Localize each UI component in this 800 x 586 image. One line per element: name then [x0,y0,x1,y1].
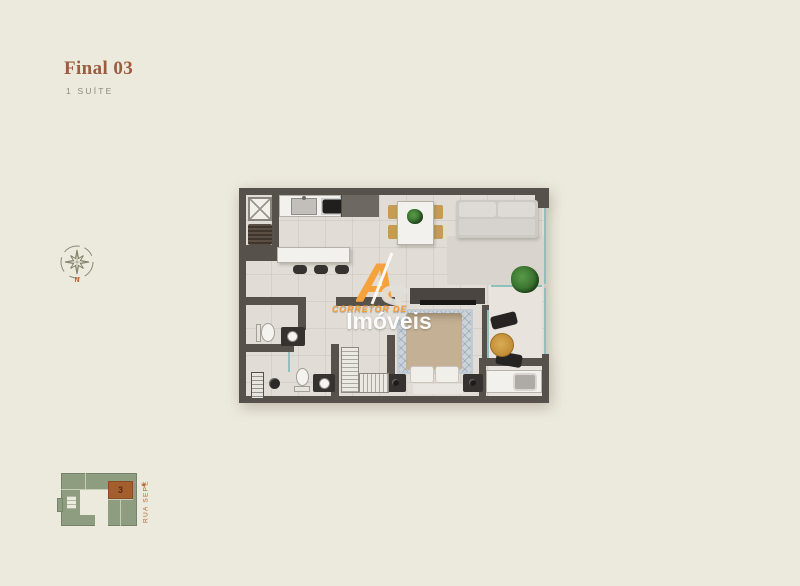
wall [387,335,395,377]
highlighted-unit: 3 [108,481,133,499]
sofa-seat [459,219,535,235]
window-glass [544,208,546,284]
tv-screen [420,300,476,305]
wall [239,188,542,195]
dining-chair [433,225,443,239]
kitchen-sink [291,198,317,215]
bed-pillow [410,366,434,383]
balcony-door-glass [487,310,489,358]
shower [251,372,264,399]
toilet [261,323,275,342]
courtyard [80,490,108,515]
window-glass [544,288,546,354]
unit-divider-line [85,473,86,490]
stairs [67,496,76,509]
bed-headboard [413,384,463,394]
balcony-round-table [490,333,514,357]
toilet [294,386,310,392]
wall [239,396,549,403]
courtyard-corridor [95,515,108,526]
unit-divider-line [120,499,121,526]
sofa-cushion [459,202,496,217]
bar-stool [335,265,349,274]
dining-chair [433,205,443,219]
sofa-cushion [498,202,535,217]
bar-stool [293,265,307,274]
laundry-basket [248,224,272,245]
page-title: Final 03 [64,58,133,80]
floor-plant [511,266,539,293]
lamp-icon [392,379,399,386]
wall [246,297,306,305]
kitchen-island [277,247,350,263]
vanity-sink [319,378,330,389]
sofa [456,200,538,238]
wall [239,188,246,403]
shaft-box [248,197,272,221]
shower-door-glass [288,352,290,372]
watermark-brand: Imóveis [299,308,479,335]
closet-shelves [359,373,389,393]
compass-rose-icon: N [55,241,99,285]
balcony-sink [513,373,537,391]
kitchen-cabinet [341,195,379,217]
bar-stool [314,265,328,274]
toilet [296,368,309,386]
bathroom-stool [269,378,280,389]
building-wing [57,498,63,512]
page: Final 03 1 SUÍTE N [0,0,800,586]
lamp-icon [469,379,476,386]
closet-shelves [341,347,359,393]
bed-pillow [435,366,459,383]
page-subtitle: 1 SUÍTE [66,86,114,96]
wall [272,195,279,247]
kitchen-faucet [302,196,306,200]
street-label: RUA SEPÉ [143,476,152,528]
wall [246,245,277,261]
table-plant [407,209,423,224]
wall [542,354,549,403]
site-plan: 3 RUA SEPÉ [55,470,165,532]
vanity-sink [287,331,298,342]
compass-north-label: N [74,277,79,284]
